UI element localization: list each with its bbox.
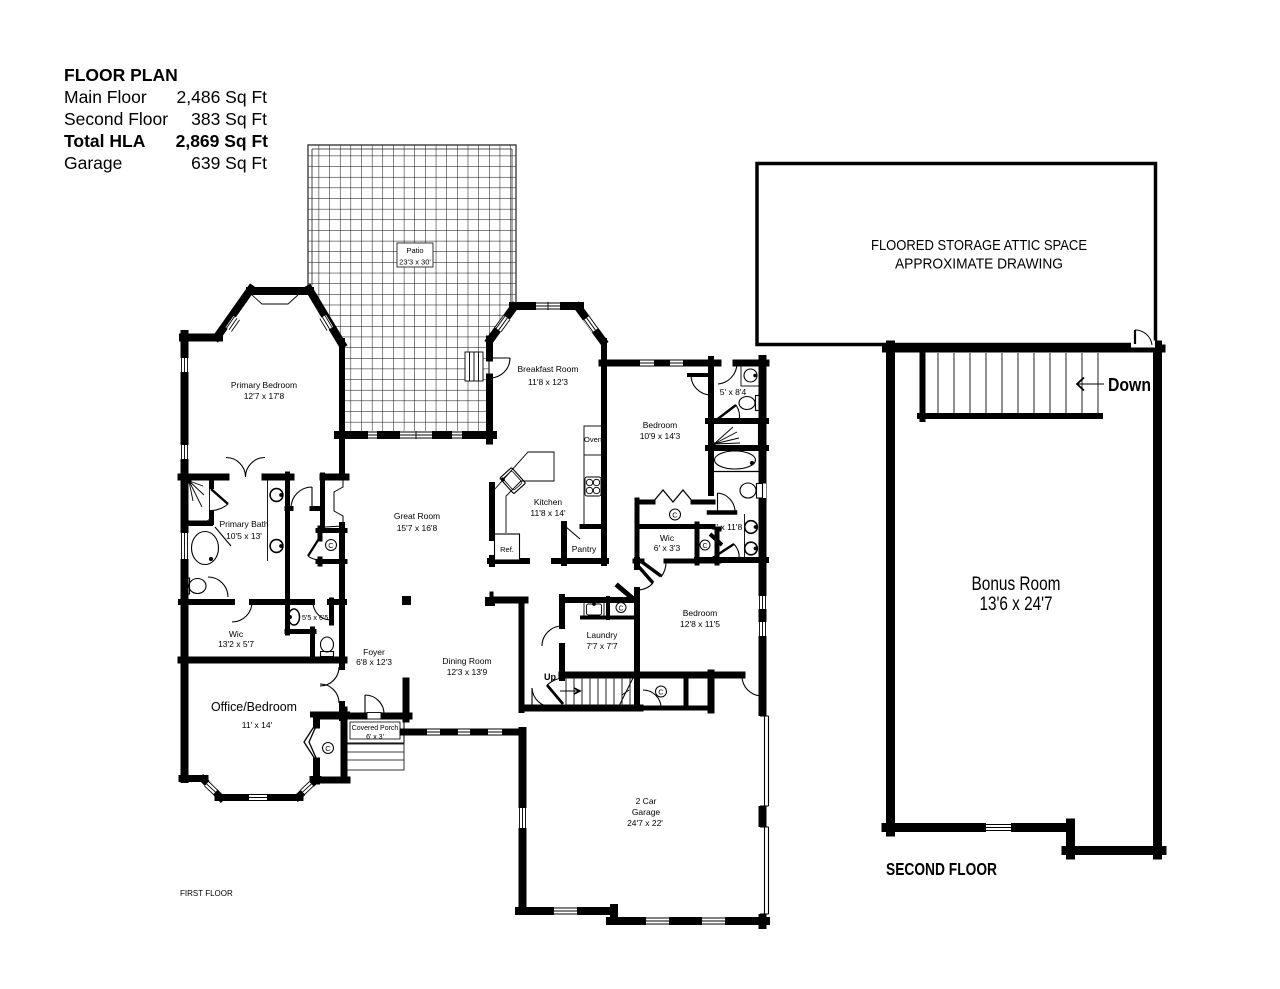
svg-text:Bedroom: Bedroom — [643, 420, 678, 430]
svg-text:Second Floor: Second Floor — [64, 109, 168, 129]
svg-text:C: C — [618, 606, 623, 613]
svg-text:Foyer: Foyer — [363, 647, 385, 657]
svg-text:10'9 x 14'3: 10'9 x 14'3 — [640, 431, 681, 441]
svg-text:12'7 x 17'8: 12'7 x 17'8 — [244, 391, 285, 401]
svg-text:383 Sq Ft: 383 Sq Ft — [191, 109, 267, 129]
svg-text:FIRST FLOOR: FIRST FLOOR — [180, 889, 233, 898]
svg-text:11' x 14': 11' x 14' — [242, 720, 273, 730]
svg-text:5'5 x 6'5: 5'5 x 6'5 — [302, 613, 328, 622]
svg-text:Up: Up — [544, 672, 556, 682]
svg-text:10'5 x 13': 10'5 x 13' — [226, 531, 262, 541]
svg-text:Primary Bath: Primary Bath — [219, 519, 268, 529]
svg-text:C: C — [325, 744, 331, 753]
svg-text:Main Floor: Main Floor — [64, 87, 147, 107]
svg-text:5' x 8'4: 5' x 8'4 — [720, 387, 747, 397]
svg-text:Breakfast Room: Breakfast Room — [518, 364, 579, 374]
svg-text:Laundry: Laundry — [587, 630, 618, 640]
svg-text:13'6 x 24'7: 13'6 x 24'7 — [980, 594, 1053, 615]
svg-text:FLOOR PLAN: FLOOR PLAN — [64, 65, 178, 85]
svg-text:11'8 x 12'3: 11'8 x 12'3 — [528, 377, 568, 387]
svg-text:Garage: Garage — [64, 153, 122, 173]
svg-text:12'3 x 13'9: 12'3 x 13'9 — [447, 667, 488, 677]
svg-text:13'2 x 5'7: 13'2 x 5'7 — [218, 639, 254, 649]
svg-text:15'7 x 16'8: 15'7 x 16'8 — [397, 523, 438, 533]
svg-text:2 Car: 2 Car — [636, 796, 657, 806]
svg-text:FLOORED STORAGE ATTIC SPACE: FLOORED STORAGE ATTIC SPACE — [871, 238, 1087, 254]
svg-text:5' x 11'8: 5' x 11'8 — [712, 522, 743, 532]
svg-text:Dining Room: Dining Room — [442, 656, 491, 666]
svg-text:23'3 x 30': 23'3 x 30' — [399, 258, 431, 267]
svg-text:639 Sq Ft: 639 Sq Ft — [191, 153, 267, 173]
svg-text:Kitchen: Kitchen — [534, 497, 563, 507]
svg-text:2,486 Sq Ft: 2,486 Sq Ft — [177, 87, 268, 107]
svg-text:11'8 x 14': 11'8 x 14' — [530, 508, 566, 518]
svg-text:12'8 x 11'5: 12'8 x 11'5 — [680, 619, 720, 629]
svg-text:SECOND FLOOR: SECOND FLOOR — [886, 859, 997, 879]
svg-text:Down: Down — [1108, 375, 1151, 395]
svg-text:Wic: Wic — [229, 629, 244, 639]
svg-text:7'7 x 7'7: 7'7 x 7'7 — [586, 641, 617, 651]
svg-text:APPROXIMATE DRAWING: APPROXIMATE DRAWING — [895, 257, 1063, 273]
svg-text:Bonus Room: Bonus Room — [972, 574, 1061, 595]
svg-text:C: C — [328, 541, 334, 550]
svg-text:Pantry: Pantry — [572, 544, 597, 554]
svg-text:6'8 x 12'3: 6'8 x 12'3 — [356, 657, 392, 667]
svg-text:Garage: Garage — [632, 807, 661, 817]
svg-text:24'7 x 22': 24'7 x 22' — [627, 818, 663, 828]
svg-text:Total HLA: Total HLA — [64, 131, 146, 151]
svg-text:Primary Bedroom: Primary Bedroom — [231, 380, 297, 390]
svg-text:C: C — [702, 543, 707, 550]
svg-text:Bedroom: Bedroom — [683, 608, 718, 618]
svg-text:C: C — [658, 688, 664, 697]
svg-text:Wic: Wic — [660, 533, 675, 543]
svg-text:Patio: Patio — [406, 246, 423, 255]
svg-text:Ref.: Ref. — [500, 545, 514, 554]
svg-text:Covered Porch: Covered Porch — [352, 725, 399, 732]
svg-text:2,869 Sq Ft: 2,869 Sq Ft — [176, 131, 269, 151]
svg-text:Office/Bedroom: Office/Bedroom — [211, 700, 297, 714]
svg-text:6' x 3': 6' x 3' — [366, 734, 384, 741]
svg-text:6' x 3'3: 6' x 3'3 — [654, 543, 681, 553]
svg-text:Oven: Oven — [584, 435, 602, 444]
svg-text:Great Room: Great Room — [394, 511, 440, 521]
svg-text:C: C — [672, 511, 678, 520]
